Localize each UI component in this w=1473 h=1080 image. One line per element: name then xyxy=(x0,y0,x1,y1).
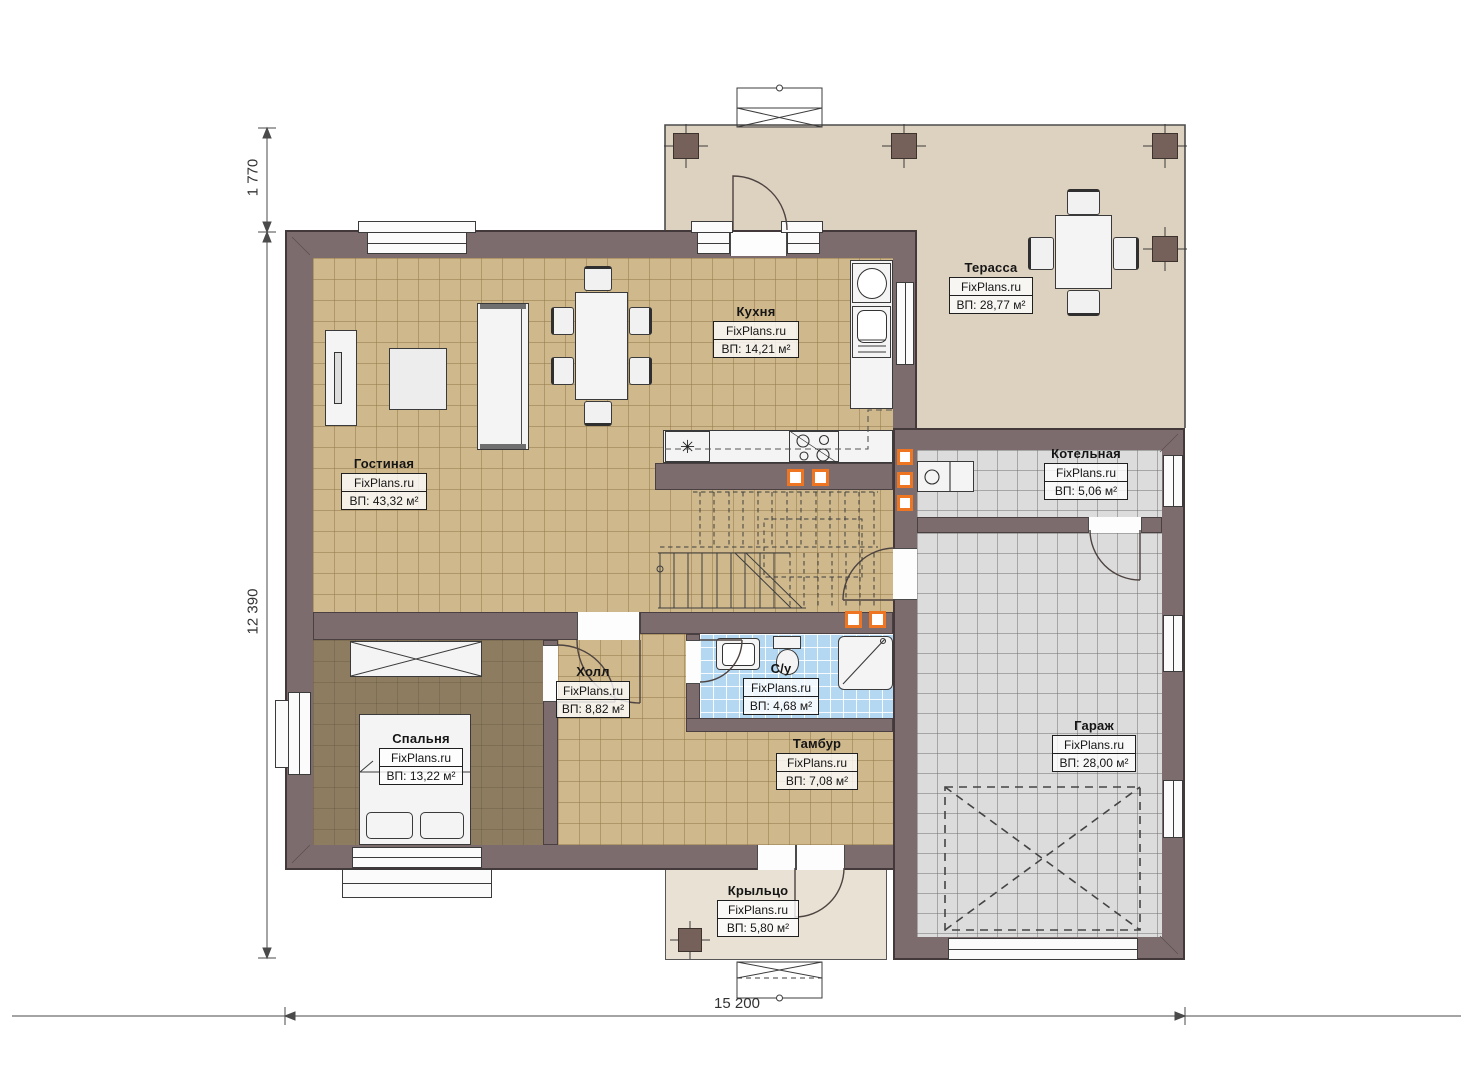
room-info-box: FixPlans.ru ВП: 28,00 м² xyxy=(1052,735,1136,772)
room-area: ВП: 7,08 м² xyxy=(777,772,857,789)
room-name: Крыльцо xyxy=(717,883,799,898)
room-label-boiler: Котельная FixPlans.ru ВП: 5,06 м² xyxy=(1044,446,1128,500)
room-name: Котельная xyxy=(1044,446,1128,461)
room-label-bedroom: Спальня FixPlans.ru ВП: 13,22 м² xyxy=(379,731,463,785)
bedroom-left-window-sill xyxy=(275,700,289,768)
room-area: ВП: 5,06 м² xyxy=(1045,482,1127,499)
room-label-vestibule: Тамбур FixPlans.ru ВП: 7,08 м² xyxy=(776,736,858,790)
room-info-box: FixPlans.ru ВП: 7,08 м² xyxy=(776,753,858,790)
wall-bathroom-bottom xyxy=(686,718,893,732)
room-label-hall: Холл FixPlans.ru ВП: 8,82 м² xyxy=(556,664,630,718)
pillow xyxy=(420,812,464,839)
terrace-column xyxy=(1152,133,1178,159)
entry-steps-top xyxy=(737,85,822,127)
vent-marker xyxy=(897,449,913,465)
room-area: ВП: 14,21 м² xyxy=(714,340,798,357)
opening-bathroom-door xyxy=(686,640,700,684)
opening-porch-door xyxy=(757,845,845,870)
room-info-box: FixPlans.ru ВП: 8,82 м² xyxy=(556,681,630,718)
vent-marker xyxy=(787,469,804,486)
room-name: Холл xyxy=(556,664,630,679)
toilet-tank xyxy=(773,636,801,649)
room-area: ВП: 4,68 м² xyxy=(744,697,818,714)
room-info-box: FixPlans.ru ВП: 13,22 м² xyxy=(379,748,463,785)
vent-marker xyxy=(845,611,862,628)
garage-right-window-1 xyxy=(1163,615,1183,672)
living-top-window xyxy=(367,232,467,254)
watermark: FixPlans.ru xyxy=(1053,736,1135,754)
terrace-column xyxy=(891,133,917,159)
terrace-floor-top-strip xyxy=(665,125,917,230)
fridge: ✳ xyxy=(665,431,710,462)
fridge-icon: ✳ xyxy=(666,432,709,461)
dimension-terrace-depth: 1 770 xyxy=(245,133,262,223)
sink-basin-icon xyxy=(857,310,887,343)
stove xyxy=(789,431,839,462)
room-label-porch: Крыльцо FixPlans.ru ВП: 5,80 м² xyxy=(717,883,799,937)
watermark: FixPlans.ru xyxy=(380,749,462,767)
room-area: ВП: 43,32 м² xyxy=(342,492,426,509)
room-area: ВП: 28,00 м² xyxy=(1053,754,1135,771)
room-info-box: FixPlans.ru ВП: 5,80 м² xyxy=(717,900,799,937)
shower-tray xyxy=(838,636,893,690)
opening-boiler-door xyxy=(1088,517,1142,533)
terrace-chair xyxy=(1067,189,1100,215)
garage-gate xyxy=(948,938,1138,960)
sink-bowl-icon xyxy=(857,268,887,299)
sofa xyxy=(477,303,529,450)
room-area: ВП: 28,77 м² xyxy=(950,296,1032,313)
bedroom-left-window xyxy=(288,692,311,775)
room-name: Спальня xyxy=(379,731,463,746)
dimension-house-depth: 12 390 xyxy=(245,567,262,657)
watermark: FixPlans.ru xyxy=(744,679,818,697)
vent-marker xyxy=(812,469,829,486)
dining-chair xyxy=(629,357,652,385)
watermark: FixPlans.ru xyxy=(777,754,857,772)
dining-chair xyxy=(551,357,574,385)
dining-chair xyxy=(584,401,612,426)
vent-marker xyxy=(897,472,913,488)
room-info-box: FixPlans.ru ВП: 4,68 м² xyxy=(743,678,819,715)
sofa-armrest-top xyxy=(480,304,526,309)
room-label-kitchen: Кухня FixPlans.ru ВП: 14,21 м² xyxy=(713,304,799,358)
kitchen-sink-round xyxy=(852,263,891,303)
terrace-chair xyxy=(1067,290,1100,316)
vent-marker xyxy=(897,495,913,511)
boiler-unit xyxy=(917,461,974,492)
kitchen-right-window xyxy=(896,282,914,365)
room-name: Гостиная xyxy=(341,456,427,471)
terrace-column xyxy=(1152,236,1178,262)
room-name: Гараж xyxy=(1052,718,1136,733)
room-info-box: FixPlans.ru ВП: 14,21 м² xyxy=(713,321,799,358)
wardrobe xyxy=(350,641,482,677)
dining-chair xyxy=(584,266,612,291)
room-label-garage: Гараж FixPlans.ru ВП: 28,00 м² xyxy=(1052,718,1136,772)
porch-column xyxy=(678,928,702,952)
watermark: FixPlans.ru xyxy=(1045,464,1127,482)
sofa-back-line xyxy=(521,307,522,446)
tv xyxy=(334,352,342,404)
room-area: ВП: 13,22 м² xyxy=(380,767,462,784)
opening-house-garage-door xyxy=(893,548,917,600)
terrace-table xyxy=(1055,215,1112,289)
pillow xyxy=(366,812,413,839)
bedroom-bottom-window-sill xyxy=(342,869,492,898)
kitchen-top-window-1 xyxy=(697,232,730,254)
room-info-box: FixPlans.ru ВП: 28,77 м² xyxy=(949,277,1033,314)
room-area: ВП: 5,80 м² xyxy=(718,919,798,936)
kitchen-sink-square xyxy=(852,306,891,358)
room-label-living: Гостиная FixPlans.ru ВП: 43,32 м² xyxy=(341,456,427,510)
watermark: FixPlans.ru xyxy=(557,682,629,700)
room-info-box: FixPlans.ru ВП: 5,06 м² xyxy=(1044,463,1128,500)
boiler-right-window xyxy=(1163,455,1183,507)
room-area: ВП: 8,82 м² xyxy=(557,700,629,717)
watermark: FixPlans.ru xyxy=(950,278,1032,296)
terrace-chair xyxy=(1113,237,1139,270)
floor-plan-canvas: ✳ xyxy=(0,0,1473,1080)
dimension-house-width: 15 200 xyxy=(692,995,782,1012)
watermark: FixPlans.ru xyxy=(718,901,798,919)
coffee-table xyxy=(389,348,447,410)
sofa-armrest-bottom xyxy=(480,444,526,449)
vent-marker xyxy=(869,611,886,628)
room-info-box: FixPlans.ru ВП: 43,32 м² xyxy=(341,473,427,510)
room-name: Терасса xyxy=(949,260,1033,275)
room-name: С/у xyxy=(743,661,819,676)
porch-door-divider xyxy=(795,845,797,870)
room-label-terrace: Терасса FixPlans.ru ВП: 28,77 м² xyxy=(949,260,1033,314)
opening-living-hall xyxy=(577,612,640,640)
garage-right-window-2 xyxy=(1163,780,1183,838)
kitchen-top-window-2 xyxy=(787,232,820,254)
room-name: Тамбур xyxy=(776,736,858,751)
terrace-column xyxy=(673,133,699,159)
bedroom-bottom-window xyxy=(352,847,482,868)
room-name: Кухня xyxy=(713,304,799,319)
dining-chair xyxy=(551,307,574,335)
room-label-bathroom: С/у FixPlans.ru ВП: 4,68 м² xyxy=(743,661,819,715)
watermark: FixPlans.ru xyxy=(714,322,798,340)
opening-terrace-door xyxy=(730,232,787,256)
wall-kitchen-stairs xyxy=(655,463,893,490)
dining-table xyxy=(575,292,628,400)
watermark: FixPlans.ru xyxy=(342,474,426,492)
dining-chair xyxy=(629,307,652,335)
